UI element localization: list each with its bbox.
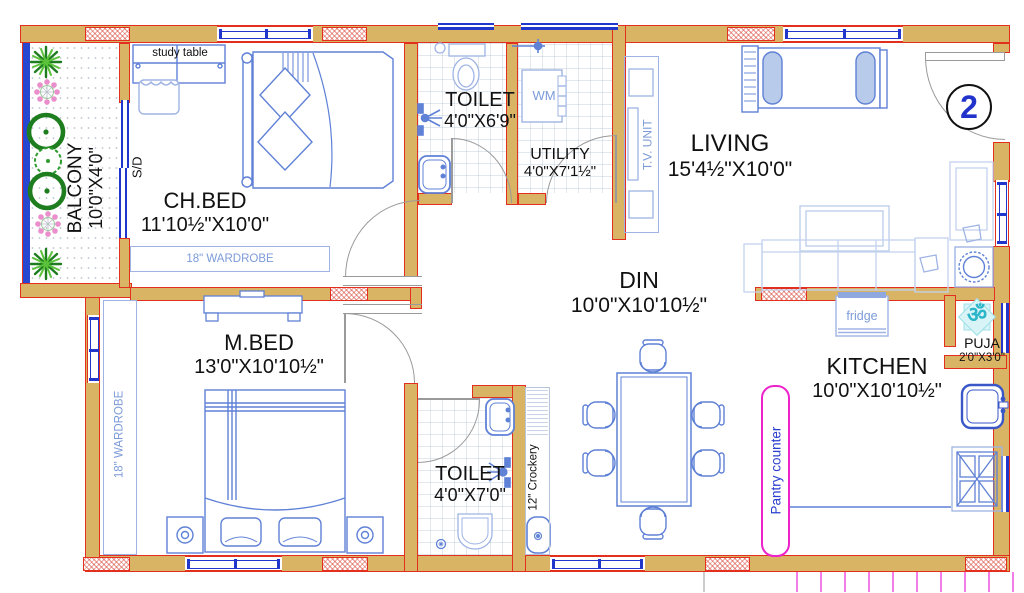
balcony-name: BALCONY: [65, 128, 86, 248]
fridge-label: fridge: [832, 309, 892, 323]
entrance-number-badge: 2: [946, 84, 992, 130]
toilet1-name: TOILET: [420, 89, 540, 111]
toilet2-size: 4'0"X7'0": [410, 485, 530, 505]
mbed-wardrobe-label: 18" WARDROBE: [114, 374, 127, 494]
toilet2-wc: [437, 514, 493, 549]
living-name: LIVING: [630, 131, 830, 158]
utility-tap: [512, 39, 545, 53]
chbed-wardrobe-label: 18" WARDROBE: [131, 253, 329, 266]
chbed-label: CH.BED 11'10½"X10'0": [105, 189, 305, 236]
living-sofa: [742, 46, 887, 112]
din-name: DIN: [539, 268, 739, 294]
chbed-wardrobe: 18" WARDROBE: [130, 246, 330, 272]
toilet1-wc: [435, 43, 485, 90]
balcony-size: 10'0"X4'0": [86, 128, 106, 248]
entrance-number: 2: [960, 89, 978, 126]
dining-table: [583, 340, 724, 539]
pantry-counter-label: Pantry counter: [768, 411, 783, 531]
puja-size: 2'0"X3'0": [932, 352, 1024, 365]
mbed-name: M.BED: [159, 331, 359, 356]
mbed-bed: [205, 390, 345, 552]
sliding-door-label: S/D: [131, 147, 146, 187]
puja-label: PUJA 2'0"X3'0": [932, 336, 1024, 365]
living-label: LIVING 15'4½"X10'0": [630, 131, 830, 181]
living-side-table: [955, 247, 993, 287]
puja-name: PUJA: [932, 336, 1024, 352]
toilet2-label: TOILET 4'0"X7'0": [410, 463, 530, 506]
mbed-size: 13'0"X10'10½": [159, 356, 359, 378]
toilet1-size: 4'0"X6'9": [420, 111, 540, 131]
study-table-label: study table: [130, 47, 230, 60]
toilet1-basin: [419, 156, 450, 193]
chbed-bed: [242, 52, 393, 188]
washing-machine-label: WM: [524, 89, 564, 104]
chbed-name: CH.BED: [105, 189, 305, 214]
toilet2-name: TOILET: [410, 463, 530, 485]
utility-label: UTILITY 4'0"X7'1½": [505, 146, 615, 181]
toilet1-label: TOILET 4'0"X6'9": [420, 89, 540, 132]
mbed-dresser: [204, 291, 302, 321]
toilet2-basin: [486, 399, 514, 435]
projection-ticks: [797, 572, 1013, 592]
mbed-label: M.BED 13'0"X10'10½": [159, 331, 359, 378]
om-symbol: ॐ: [957, 303, 997, 328]
chbed-size: 11'10½"X10'0": [105, 214, 305, 236]
kitchen-size: 10'0"X10'10½": [777, 380, 977, 402]
floor-plan: 18" WARDROBE 18" WARDROBE T.V. UNIT 12" …: [0, 0, 1024, 593]
din-size: 10'0"X10'10½": [539, 294, 739, 318]
utility-size: 4'0"X7'1½": [505, 164, 615, 181]
living-size: 15'4½"X10'0": [630, 158, 830, 182]
utility-name: UTILITY: [505, 146, 615, 164]
plants: [29, 47, 64, 279]
din-label: DIN 10'0"X10'10½": [539, 268, 739, 317]
living-chair: [950, 162, 993, 242]
kitchen-stove: [952, 447, 1002, 511]
